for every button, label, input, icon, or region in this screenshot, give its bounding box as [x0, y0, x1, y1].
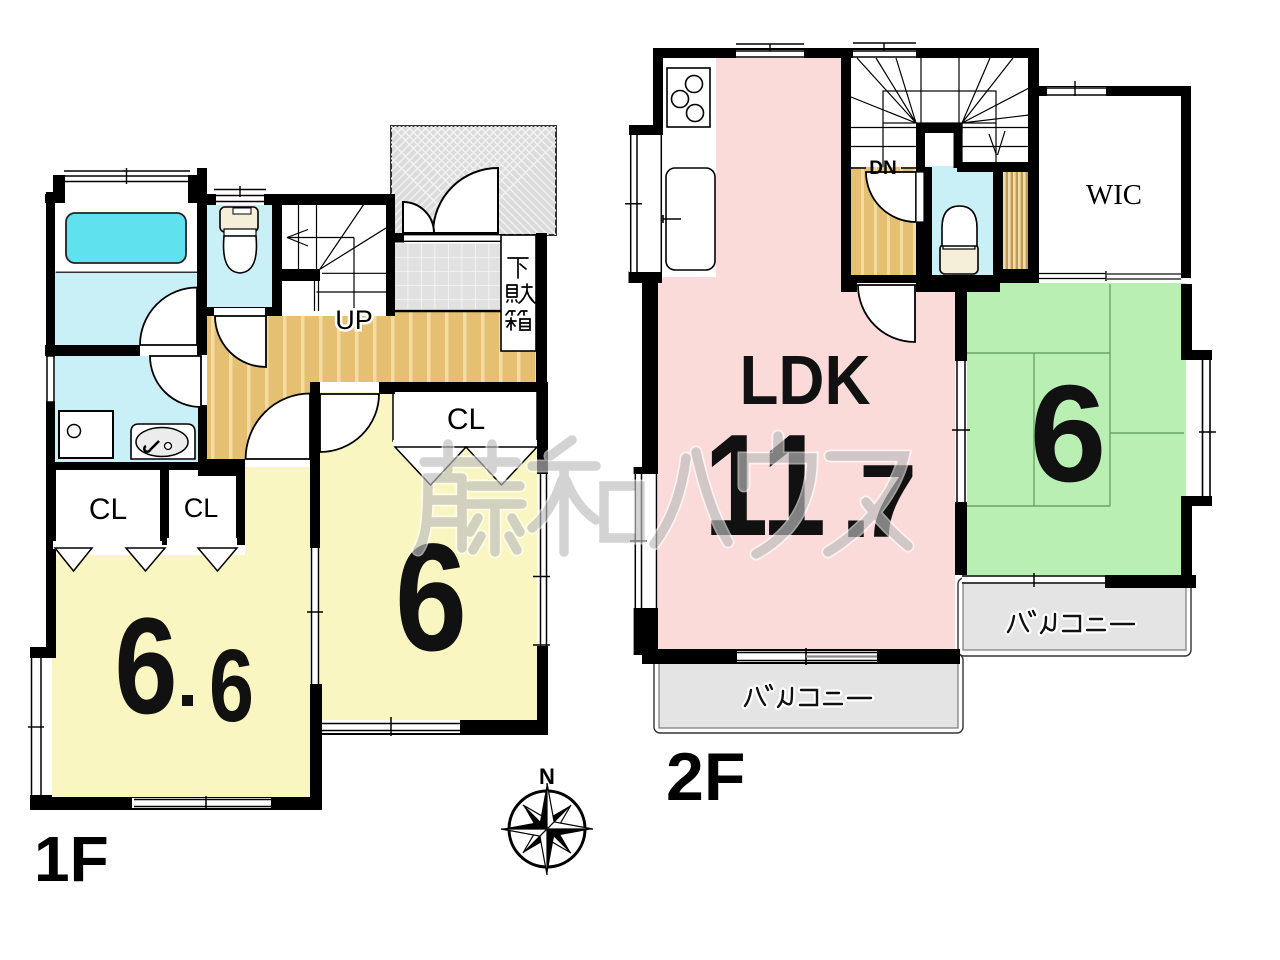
svg-text:1F: 1F: [34, 823, 109, 895]
svg-text:DN: DN: [869, 158, 896, 179]
svg-text:CL: CL: [447, 403, 485, 436]
svg-text:CL: CL: [89, 493, 127, 526]
svg-text:6: 6: [209, 628, 254, 743]
svg-text:6: 6: [1030, 357, 1107, 511]
svg-text:2F: 2F: [666, 739, 745, 815]
svg-text:6: 6: [115, 590, 178, 743]
svg-text:UP: UP: [335, 305, 373, 335]
svg-text:CL: CL: [184, 493, 219, 523]
svg-text:WIC: WIC: [1086, 179, 1142, 211]
